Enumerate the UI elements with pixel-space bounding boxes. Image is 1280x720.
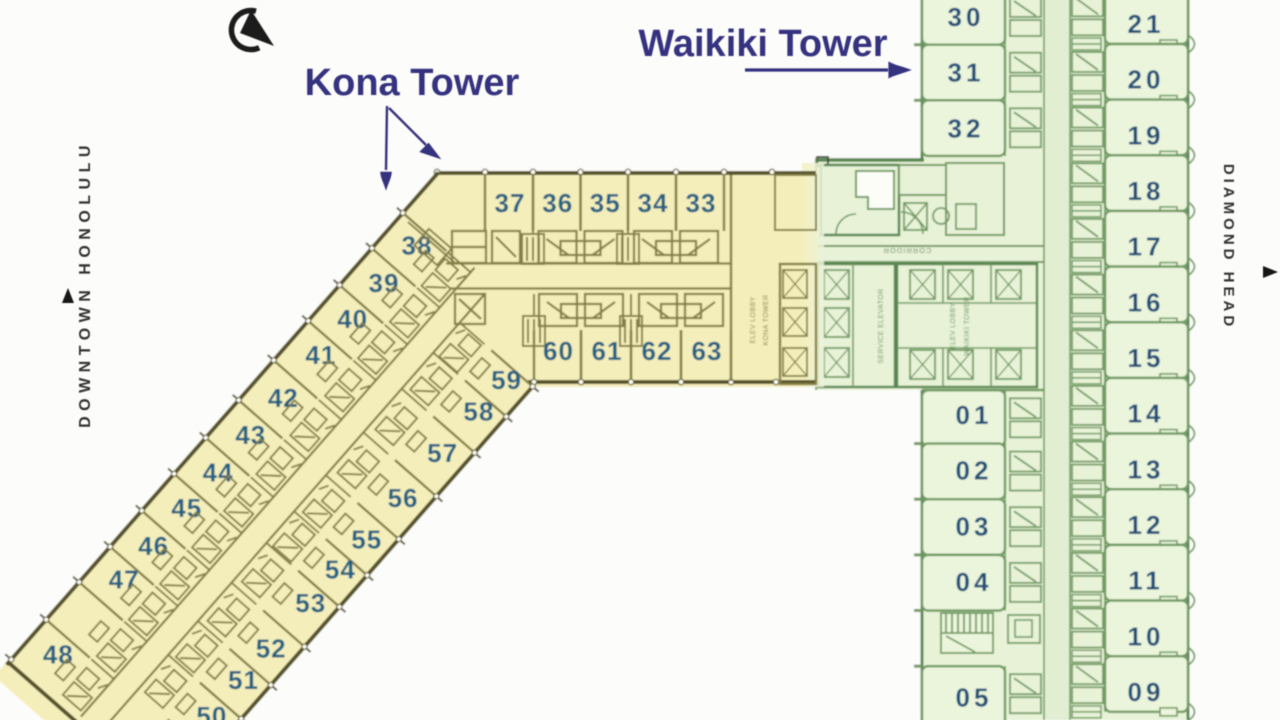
- svg-text:05: 05: [956, 682, 993, 712]
- svg-text:63: 63: [692, 336, 723, 366]
- svg-text:58: 58: [463, 397, 494, 427]
- svg-text:35: 35: [590, 188, 621, 218]
- svg-text:47: 47: [109, 564, 140, 594]
- svg-text:50: 50: [196, 701, 227, 720]
- svg-text:40: 40: [337, 304, 368, 334]
- svg-text:09: 09: [1128, 677, 1165, 707]
- svg-text:KONA TOWER: KONA TOWER: [763, 294, 770, 345]
- svg-text:DOWNTOWN HONOLULU: DOWNTOWN HONOLULU: [77, 140, 94, 428]
- svg-text:31: 31: [948, 58, 985, 88]
- svg-text:34: 34: [638, 188, 669, 218]
- svg-text:56: 56: [388, 483, 419, 513]
- svg-text:30: 30: [948, 2, 985, 32]
- svg-text:61: 61: [592, 336, 623, 366]
- svg-text:11: 11: [1128, 566, 1164, 596]
- svg-text:Kona Tower: Kona Tower: [305, 62, 520, 104]
- svg-text:20: 20: [1128, 65, 1165, 95]
- svg-text:ELEV LOBBY: ELEV LOBBY: [950, 302, 957, 349]
- svg-text:Waikiki Tower: Waikiki Tower: [638, 23, 887, 65]
- svg-text:ELEV LOBBY: ELEV LOBBY: [750, 296, 757, 343]
- svg-text:60: 60: [543, 336, 574, 366]
- svg-text:48: 48: [43, 640, 74, 670]
- svg-text:43: 43: [235, 420, 266, 450]
- svg-text:DIAMOND HEAD: DIAMOND HEAD: [1220, 164, 1237, 330]
- svg-text:19: 19: [1128, 120, 1165, 150]
- svg-text:04: 04: [956, 567, 993, 597]
- svg-text:41: 41: [305, 340, 336, 370]
- svg-text:01: 01: [956, 400, 993, 430]
- svg-text:13: 13: [1128, 454, 1165, 484]
- svg-text:42: 42: [268, 383, 299, 413]
- svg-text:59: 59: [491, 365, 522, 395]
- svg-text:17: 17: [1128, 232, 1165, 262]
- svg-text:33: 33: [686, 188, 717, 218]
- svg-text:21: 21: [1128, 9, 1165, 39]
- svg-text:02: 02: [956, 456, 993, 486]
- svg-text:44: 44: [203, 457, 234, 487]
- svg-text:39: 39: [369, 268, 400, 298]
- svg-text:16: 16: [1128, 287, 1165, 317]
- svg-text:37: 37: [495, 188, 526, 218]
- svg-text:CORRIDOR: CORRIDOR: [883, 246, 932, 255]
- svg-text:55: 55: [351, 524, 382, 554]
- svg-text:18: 18: [1128, 176, 1165, 206]
- svg-text:52: 52: [256, 633, 287, 663]
- svg-text:57: 57: [427, 438, 458, 468]
- svg-text:SERVICE ELEVATOR: SERVICE ELEVATOR: [878, 288, 885, 363]
- svg-text:53: 53: [295, 588, 326, 618]
- svg-text:45: 45: [171, 493, 202, 523]
- svg-text:54: 54: [325, 554, 356, 584]
- svg-text:WAIKIKI TOWER: WAIKIKI TOWER: [964, 296, 971, 355]
- svg-text:46: 46: [138, 531, 169, 561]
- svg-text:51: 51: [228, 665, 259, 695]
- svg-text:15: 15: [1128, 343, 1165, 373]
- svg-text:10: 10: [1128, 621, 1165, 651]
- svg-text:36: 36: [542, 188, 573, 218]
- svg-text:32: 32: [948, 113, 985, 143]
- svg-text:14: 14: [1128, 399, 1165, 429]
- svg-text:03: 03: [956, 511, 993, 541]
- svg-text:62: 62: [642, 336, 673, 366]
- svg-text:12: 12: [1128, 510, 1165, 540]
